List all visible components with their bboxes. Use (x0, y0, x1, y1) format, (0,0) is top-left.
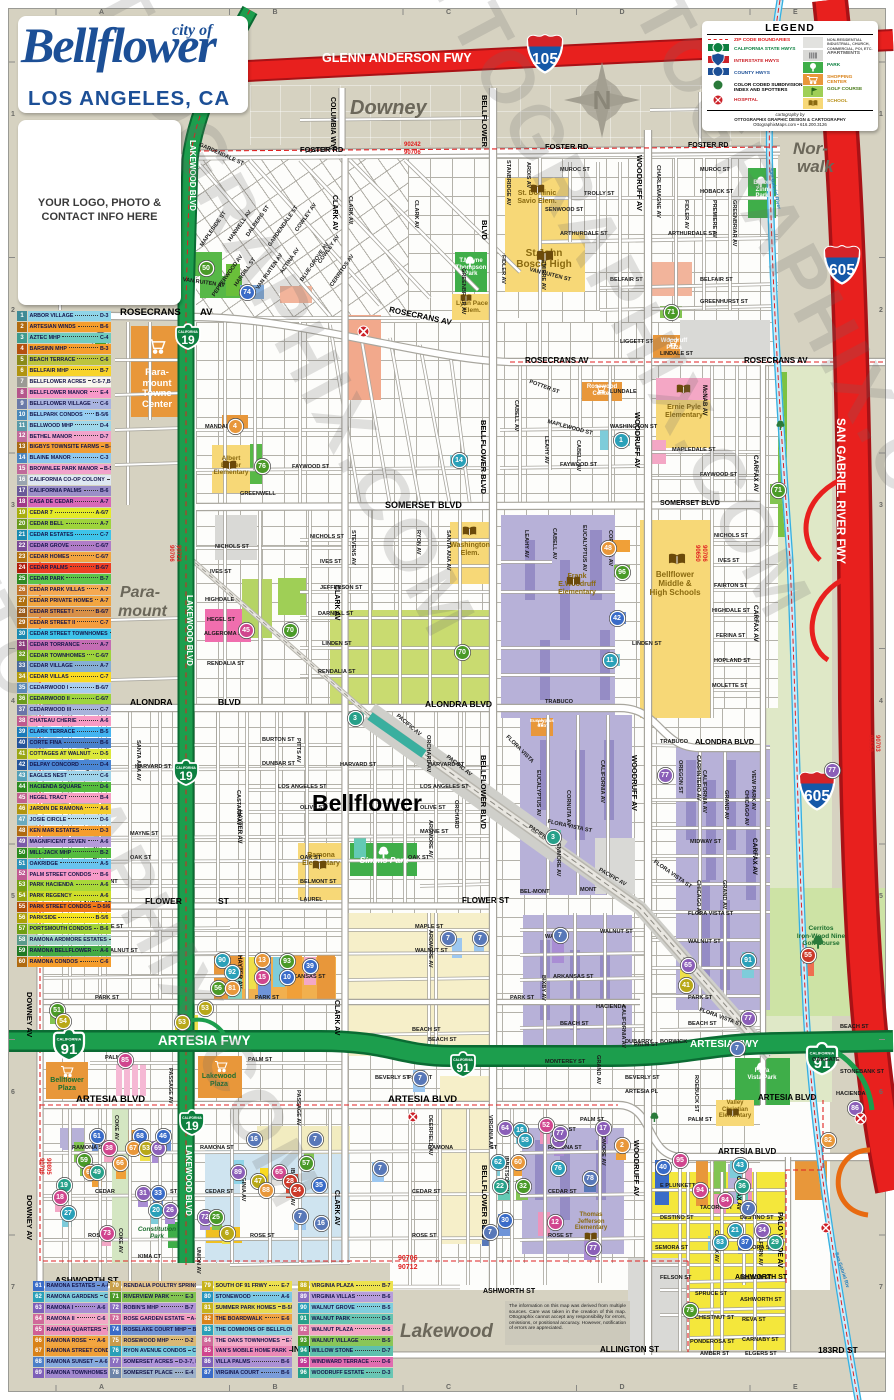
svg-text:605: 605 (804, 788, 830, 805)
svg-text:91: 91 (61, 1041, 78, 1058)
svg-text:N: N (593, 85, 612, 115)
svg-text:19: 19 (179, 769, 193, 783)
svg-text:91: 91 (456, 1061, 470, 1075)
svg-text:19: 19 (181, 333, 195, 347)
svg-text:19: 19 (185, 1119, 199, 1133)
